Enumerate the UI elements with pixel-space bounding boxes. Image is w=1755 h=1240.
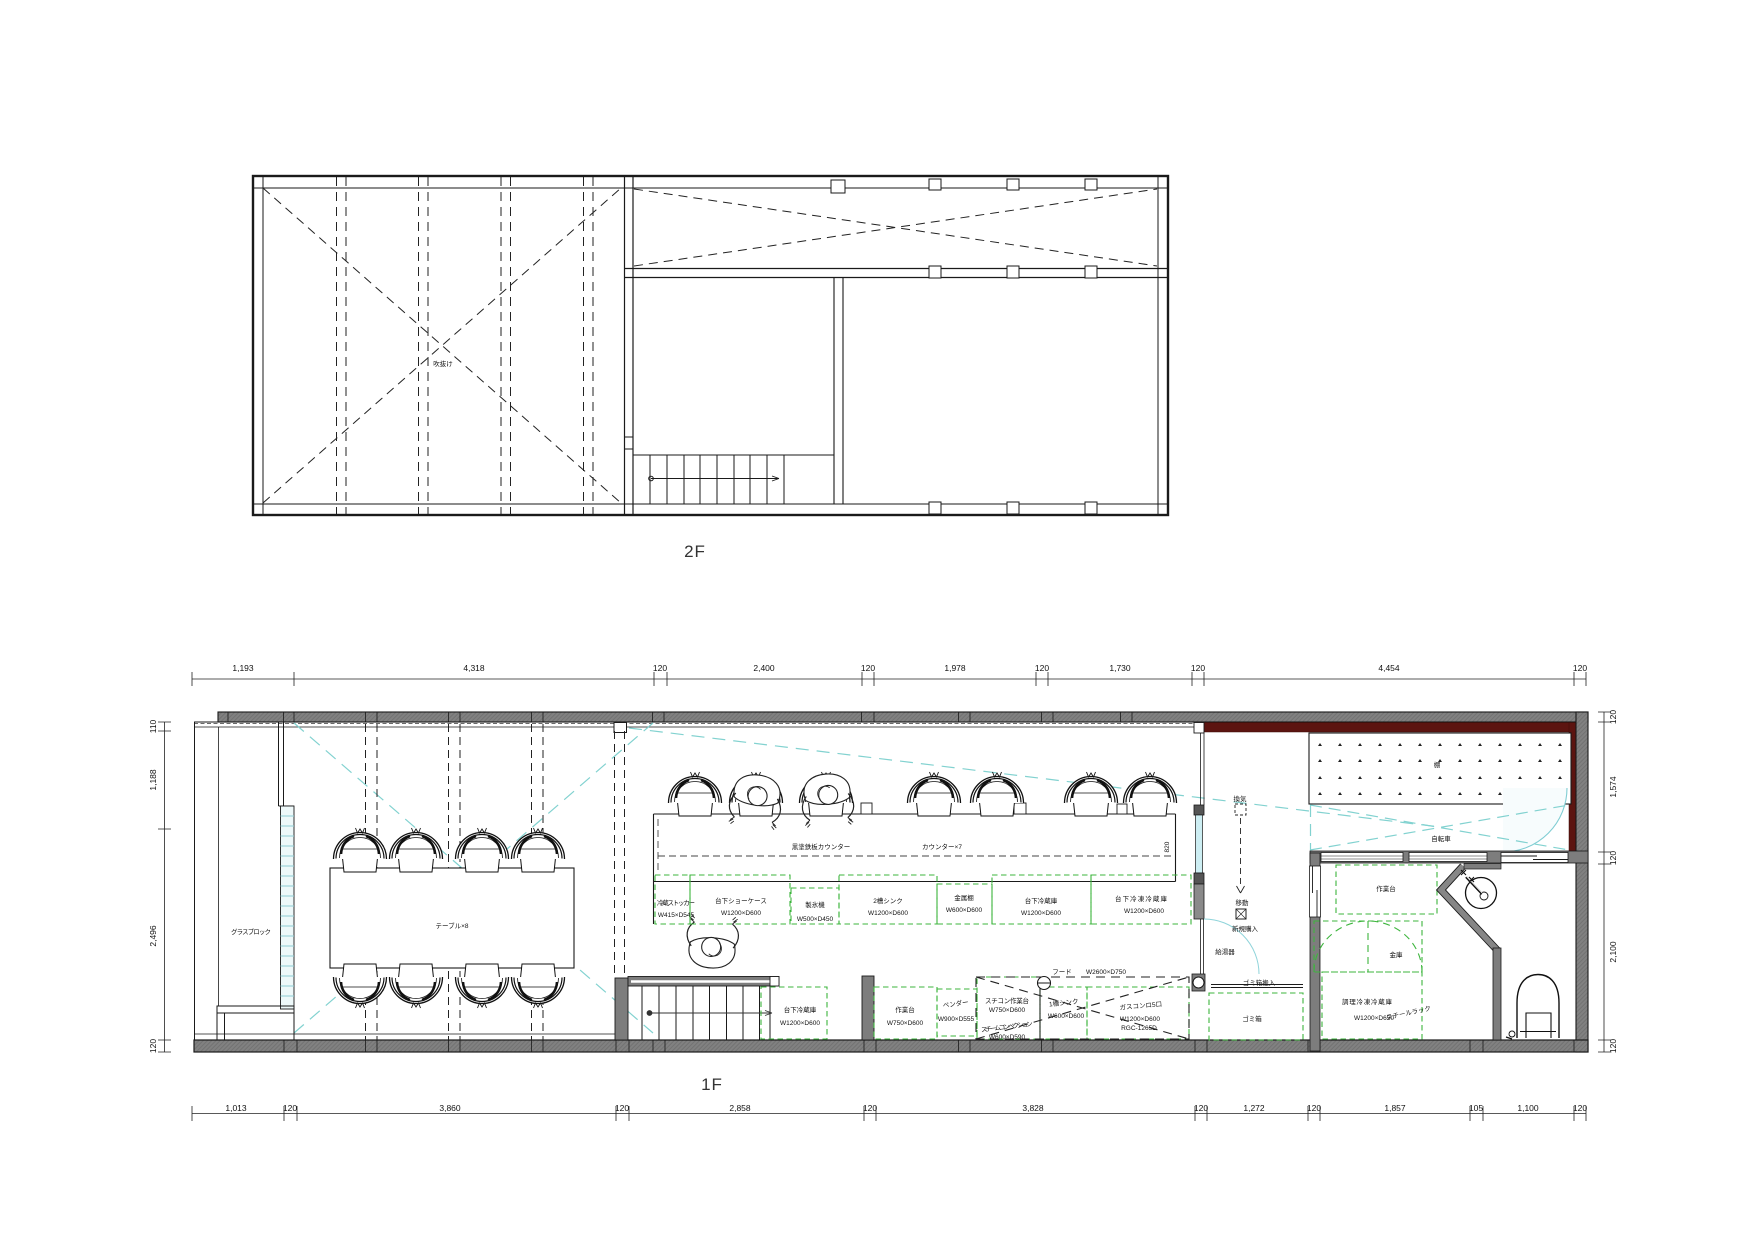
svg-text:120: 120: [148, 1039, 158, 1053]
svg-text:2槽シンク: 2槽シンク: [873, 896, 903, 905]
svg-text:120: 120: [1608, 851, 1618, 865]
svg-text:黒塗鉄板カウンター: 黒塗鉄板カウンター: [792, 842, 851, 851]
svg-text:1,730: 1,730: [1109, 663, 1131, 673]
svg-text:120: 120: [615, 1103, 629, 1113]
svg-text:移動: 移動: [1236, 898, 1250, 907]
svg-text:W600×D590: W600×D590: [989, 1034, 1026, 1041]
svg-text:110: 110: [148, 719, 158, 733]
svg-text:120: 120: [1035, 663, 1049, 673]
svg-text:120: 120: [1573, 1103, 1587, 1113]
svg-text:120: 120: [861, 663, 875, 673]
svg-text:フード: フード: [1052, 968, 1072, 976]
svg-text:1,857: 1,857: [1384, 1103, 1406, 1113]
svg-text:4,318: 4,318: [463, 663, 485, 673]
svg-text:ゴミ箱: ゴミ箱: [1242, 1014, 1262, 1023]
svg-text:W500×D450: W500×D450: [797, 916, 834, 923]
svg-text:金属棚: 金属棚: [954, 893, 974, 902]
svg-text:給湯器: 給湯器: [1215, 947, 1235, 956]
svg-text:1,978: 1,978: [944, 663, 966, 673]
svg-text:120: 120: [653, 663, 667, 673]
svg-text:W750×D600: W750×D600: [989, 1007, 1026, 1014]
svg-text:1,013: 1,013: [225, 1103, 247, 1113]
svg-text:1,100: 1,100: [1517, 1103, 1539, 1113]
svg-text:W415×D545: W415×D545: [658, 912, 695, 919]
svg-text:1,188: 1,188: [148, 769, 158, 791]
svg-text:120: 120: [1608, 1039, 1618, 1053]
svg-text:120: 120: [1191, 663, 1205, 673]
svg-text:自転車: 自転車: [1431, 834, 1451, 843]
svg-text:2,858: 2,858: [729, 1103, 751, 1113]
svg-text:3,828: 3,828: [1022, 1103, 1044, 1113]
svg-text:1,272: 1,272: [1243, 1103, 1265, 1113]
svg-text:調理冷凍冷蔵庫: 調理冷凍冷蔵庫: [1342, 997, 1393, 1006]
svg-text:吹抜け: 吹抜け: [433, 359, 453, 368]
svg-text:W1200×D600: W1200×D600: [868, 910, 908, 917]
svg-text:作業台: 作業台: [1376, 884, 1396, 893]
svg-text:カウンター×7: カウンター×7: [922, 842, 962, 851]
svg-text:2F: 2F: [684, 542, 706, 561]
svg-text:テーブル×8: テーブル×8: [435, 921, 468, 930]
svg-text:冷蔵ストッカー: 冷蔵ストッカー: [657, 898, 695, 907]
svg-text:棚: 棚: [1434, 760, 1441, 769]
svg-text:金庫: 金庫: [1390, 950, 1404, 959]
svg-text:120: 120: [1194, 1103, 1208, 1113]
svg-text:台下冷蔵庫: 台下冷蔵庫: [1025, 896, 1058, 905]
svg-text:W1200×D600: W1200×D600: [721, 910, 761, 917]
svg-text:105: 105: [1469, 1103, 1483, 1113]
svg-text:台下冷凍冷蔵庫: 台下冷凍冷蔵庫: [1115, 894, 1168, 903]
svg-text:2,100: 2,100: [1608, 941, 1618, 963]
svg-text:820: 820: [1164, 841, 1171, 852]
svg-text:1,193: 1,193: [232, 663, 254, 673]
svg-text:1,574: 1,574: [1608, 776, 1618, 798]
svg-text:作業台: 作業台: [895, 1005, 915, 1014]
svg-text:スチコン作業台: スチコン作業台: [985, 996, 1029, 1005]
svg-text:120: 120: [1573, 663, 1587, 673]
svg-text:120: 120: [863, 1103, 877, 1113]
svg-text:120: 120: [283, 1103, 297, 1113]
svg-text:グラスブロック: グラスブロック: [231, 927, 271, 936]
svg-text:W600×D600: W600×D600: [946, 907, 983, 914]
svg-text:2,400: 2,400: [753, 663, 775, 673]
svg-text:W750×D600: W750×D600: [887, 1020, 924, 1027]
svg-text:W1200×D600: W1200×D600: [1021, 910, 1061, 917]
svg-text:W2600×D750: W2600×D750: [1086, 969, 1126, 976]
svg-text:台下冷蔵庫: 台下冷蔵庫: [784, 1005, 817, 1014]
svg-text:120: 120: [1608, 710, 1618, 724]
svg-text:120: 120: [1307, 1103, 1321, 1113]
svg-text:4,454: 4,454: [1378, 663, 1400, 673]
svg-text:3,860: 3,860: [439, 1103, 461, 1113]
svg-text:1F: 1F: [701, 1075, 723, 1094]
svg-text:新規購入: 新規購入: [1232, 924, 1259, 933]
svg-text:W1200×D600: W1200×D600: [780, 1020, 820, 1027]
svg-text:2,496: 2,496: [148, 925, 158, 947]
svg-text:換気: 換気: [1234, 794, 1248, 803]
svg-text:製氷機: 製氷機: [805, 900, 825, 909]
svg-text:ゴミ箱搬入: ゴミ箱搬入: [1243, 978, 1276, 987]
svg-text:W900×D555: W900×D555: [938, 1016, 975, 1023]
svg-text:W1200×D600: W1200×D600: [1124, 908, 1164, 915]
svg-text:台下ショーケース: 台下ショーケース: [715, 896, 767, 905]
svg-text:W1200×D600: W1200×D600: [1120, 1016, 1160, 1023]
